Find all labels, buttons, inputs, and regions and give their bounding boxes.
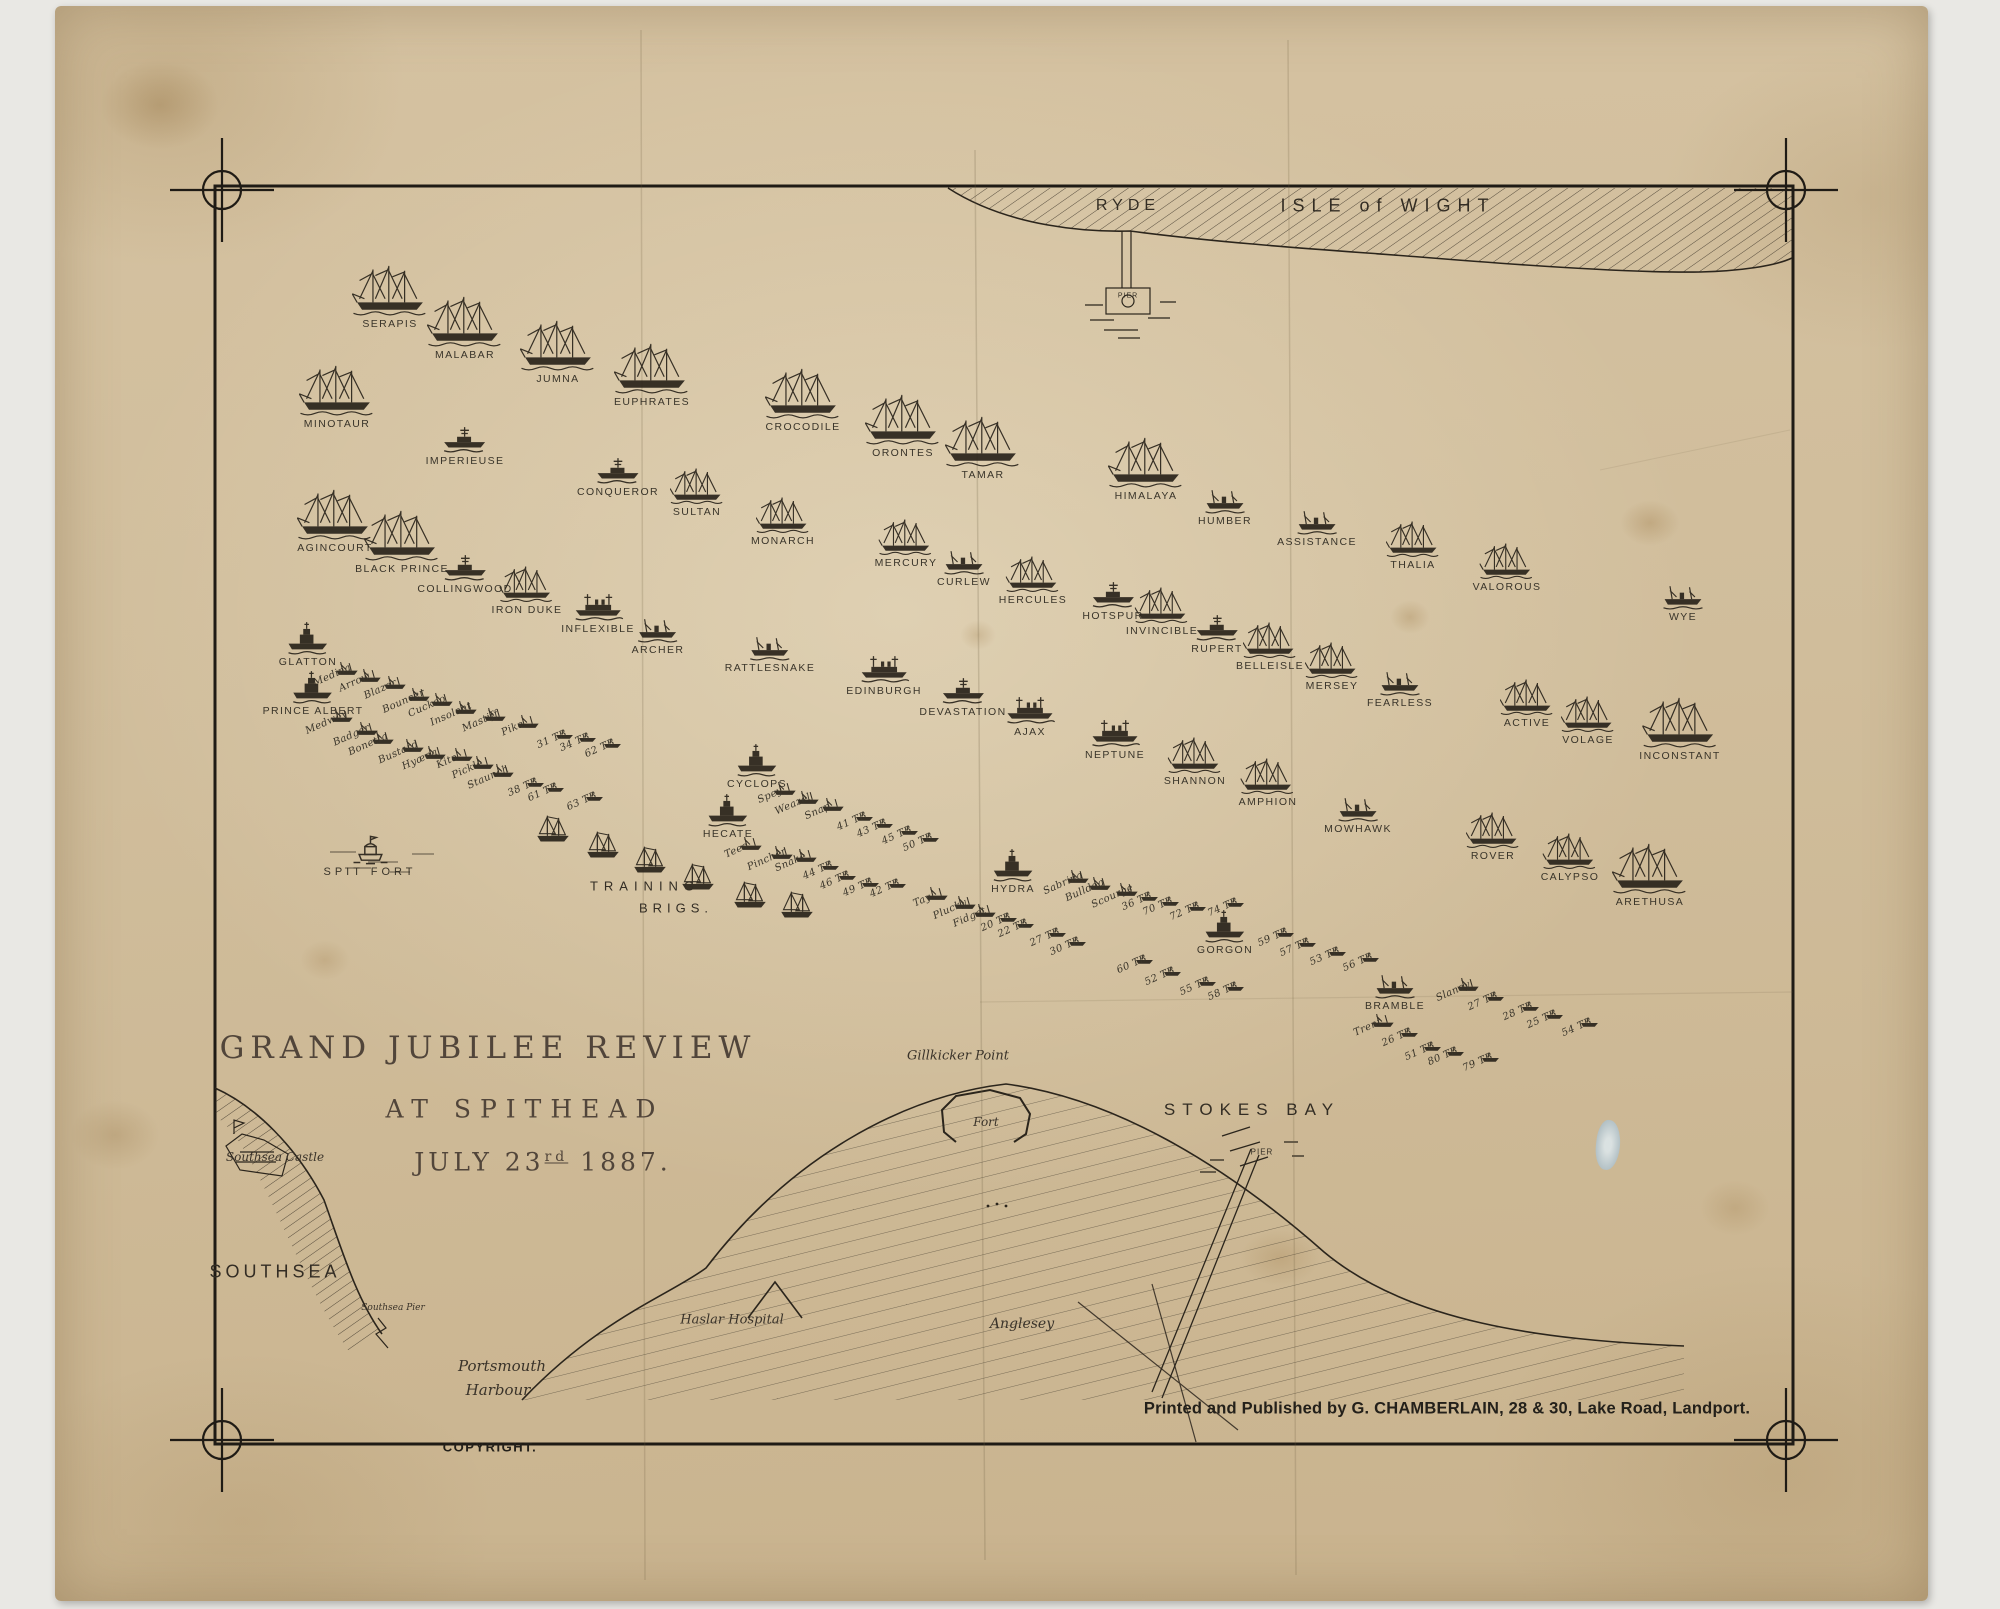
map-linework — [0, 0, 2000, 1609]
scanned-map: SERAPISMALABARJUMNAEUPHRATESCROCODILEORO… — [0, 0, 2000, 1609]
